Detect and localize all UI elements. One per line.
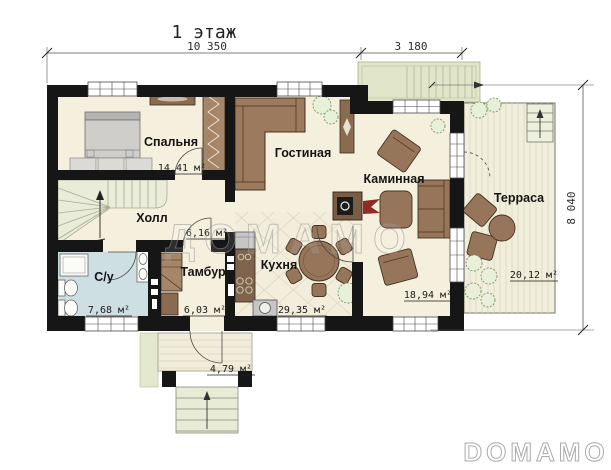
- shower-tray: [60, 254, 88, 276]
- room-label-terrace: Терраса: [494, 191, 545, 205]
- terrace-stairs: [527, 104, 553, 142]
- toilet-icon: [58, 280, 78, 296]
- room-area-porch: 4,79 м²: [210, 364, 252, 375]
- bed: [85, 112, 140, 158]
- window: [393, 317, 438, 331]
- room-area-fireplace-room: 18,94 м²: [404, 290, 452, 301]
- bed-bench: [70, 158, 152, 172]
- dimension-width-right: 3 180: [394, 40, 427, 53]
- watermark-logo: DOMAMO: [463, 437, 608, 467]
- porch: [140, 333, 252, 433]
- flowerbed: [140, 333, 158, 387]
- bidet-icon: [58, 300, 78, 316]
- double-sink: [137, 251, 149, 282]
- watermark-center: ДОМАМО: [165, 215, 415, 262]
- window: [277, 82, 322, 96]
- exterior-stair-deck: [358, 62, 480, 102]
- room-label-bedroom: Спальня: [144, 135, 198, 149]
- window: [450, 228, 464, 282]
- room-label-hall: Холл: [136, 211, 167, 225]
- window: [88, 82, 137, 96]
- room-area-vestibule: 6,03 м²: [184, 305, 226, 316]
- window: [277, 317, 325, 331]
- terrace-door: [450, 133, 464, 178]
- floor-plan-drawing: 1 этаж 10 350 3 180 8 040 Спальня 14,41 …: [0, 0, 611, 470]
- room-label-bathroom: С/у: [94, 270, 114, 284]
- room-area-kitchen: 29,35 м²: [278, 305, 326, 316]
- vestibule-bench: [161, 293, 178, 315]
- floor-plan-page: 1 этаж 10 350 3 180 8 040 Спальня 14,41 …: [0, 0, 611, 470]
- window: [393, 100, 440, 113]
- room-area-terrace: 20,12 м²: [510, 270, 558, 281]
- dimension-height-right: 8 040: [565, 191, 578, 224]
- room-label-living: Гостиная: [275, 146, 332, 160]
- dimension-width-main: 10 350: [187, 40, 227, 53]
- room-label-fireplace-room: Каминная: [363, 172, 424, 186]
- window: [85, 317, 138, 331]
- room-label-vestibule: Тамбур: [180, 265, 226, 279]
- entrance-opening: [190, 317, 224, 331]
- porch-steps: [176, 387, 238, 433]
- wall-sofa: [418, 180, 450, 238]
- terrace-table: [489, 215, 515, 241]
- washing-machine: [253, 300, 277, 316]
- room-area-bedroom: 14,41 м²: [158, 163, 206, 174]
- wardrobe: [203, 93, 225, 172]
- room-area-bathroom: 7,68 м²: [88, 305, 130, 316]
